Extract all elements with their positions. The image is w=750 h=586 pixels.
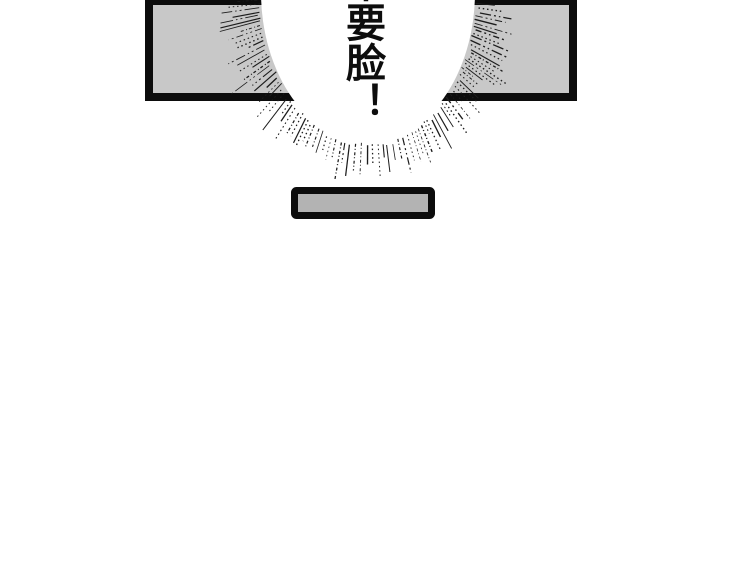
comic-panel-page: 不要脸！ (0, 0, 750, 586)
speech-text: 不要脸！ (342, 0, 382, 122)
table-edge (295, 191, 432, 216)
